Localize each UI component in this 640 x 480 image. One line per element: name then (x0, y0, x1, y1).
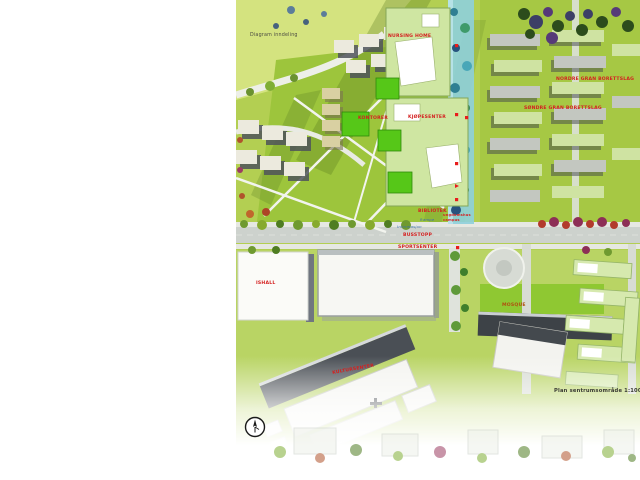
youth-house-label-2: campus (443, 219, 460, 223)
bus-stop-label: BUSSTOPP (403, 233, 432, 238)
site-plan-graphic (236, 0, 640, 480)
north-arrow-icon (244, 416, 266, 438)
nursing-home-label: NURSING HOME (388, 34, 431, 39)
ice-hall-label: ISHALL (256, 281, 275, 286)
site-plan-map: Diagram inndeling NURSING HOME KONTORER … (236, 0, 640, 480)
ramp-label: Rampe (420, 218, 434, 222)
nordre-borettslag-label: NORDRE GRAN BORETTSLAG (556, 77, 634, 82)
offices-label: KONTORER (358, 116, 388, 121)
mosque-label: MOSQUE (502, 303, 526, 308)
sports-center-label: SPORTSENTER (398, 245, 437, 250)
shopping-center-label: KJØPESENTER (408, 115, 446, 120)
plan-scale-caption: Plan sentrumsområde 1:1000 (554, 389, 640, 395)
sondre-borettslag-label: SØNDRE GRAN BORETTSLAG (524, 106, 602, 111)
diagram-note-label: Diagram inndeling (250, 33, 298, 38)
page-canvas: Diagram inndeling NURSING HOME KONTORER … (0, 0, 640, 480)
information-label: Informasjon (397, 225, 422, 229)
